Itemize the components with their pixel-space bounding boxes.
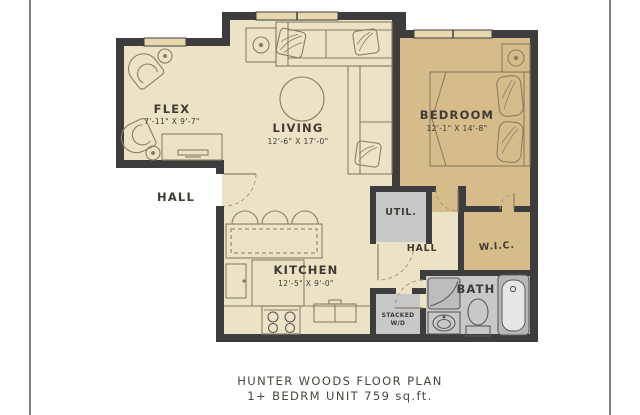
flex-window — [144, 38, 186, 46]
laundry-label-line1: STACKED — [382, 312, 415, 319]
bath-label: BATH — [456, 282, 495, 296]
caption-line1: HUNTER WOODS FLOOR PLAN — [237, 374, 443, 388]
bedroom-dims: 12'-1" X 14'-8" — [427, 124, 488, 133]
living-dims: 12'-6" X 17'-0" — [268, 137, 329, 146]
page-frame-line-right — [609, 0, 611, 415]
floor-plan-image[interactable]: FLEX 7'-11" X 9'-7" LIVING 12'-6" X 17'-… — [0, 0, 640, 415]
caption-line2: 1+ BEDRM UNIT 759 sq.ft. — [247, 389, 432, 403]
hall-inside-label: HALL — [407, 243, 438, 254]
living-label: LIVING — [272, 121, 323, 135]
flex-dims: 7'-11" X 9'-7" — [144, 117, 200, 126]
bedroom-label: BEDROOM — [420, 108, 494, 122]
kitchen-label: KITCHEN — [274, 263, 339, 277]
page-frame-line-left — [29, 0, 31, 415]
util-label: UTIL. — [385, 207, 416, 218]
floorplan-page: FLEX 7'-11" X 9'-7" LIVING 12'-6" X 17'-… — [0, 0, 640, 415]
shower-linen — [428, 278, 460, 309]
caption: HUNTER WOODS FLOOR PLAN 1+ BEDRM UNIT 75… — [237, 374, 443, 403]
flex-label: FLEX — [154, 102, 191, 116]
bathtub — [498, 275, 529, 335]
hall-outside-label: HALL — [157, 190, 195, 204]
laundry-label-line2: W/D — [391, 320, 406, 327]
kitchen-dims: 12'-5" X 9'-0" — [278, 279, 334, 288]
